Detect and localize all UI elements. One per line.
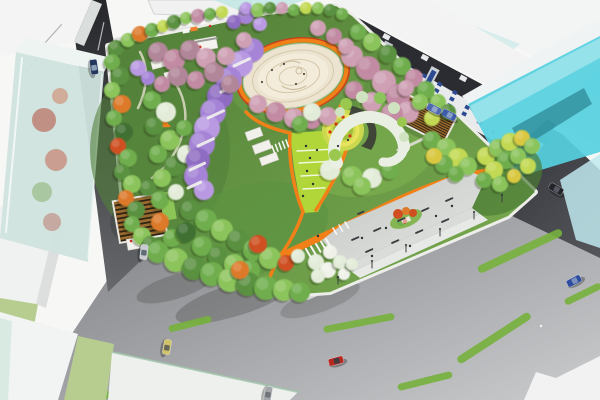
- canopy-foliage: [388, 102, 400, 114]
- tower-reflection: [43, 213, 61, 231]
- scene-svg: [0, 0, 600, 400]
- island-shrub: [393, 209, 403, 219]
- tower-reflection: [52, 88, 68, 104]
- canopy-foliage: [399, 132, 409, 142]
- tower-reflection: [32, 108, 56, 132]
- canopy-foliage: [356, 91, 368, 103]
- street-marker: [209, 25, 212, 28]
- island-shrub: [409, 209, 417, 217]
- person-crossing: [540, 325, 542, 327]
- viewport: [0, 0, 600, 400]
- canopy-foliage: [329, 149, 341, 161]
- canopy-foliage: [397, 117, 407, 127]
- tower-reflection: [32, 182, 52, 202]
- tower-reflection: [45, 149, 67, 171]
- canopy-foliage: [335, 107, 345, 117]
- canopy-foliage: [374, 92, 386, 104]
- island-shrub: [402, 207, 410, 215]
